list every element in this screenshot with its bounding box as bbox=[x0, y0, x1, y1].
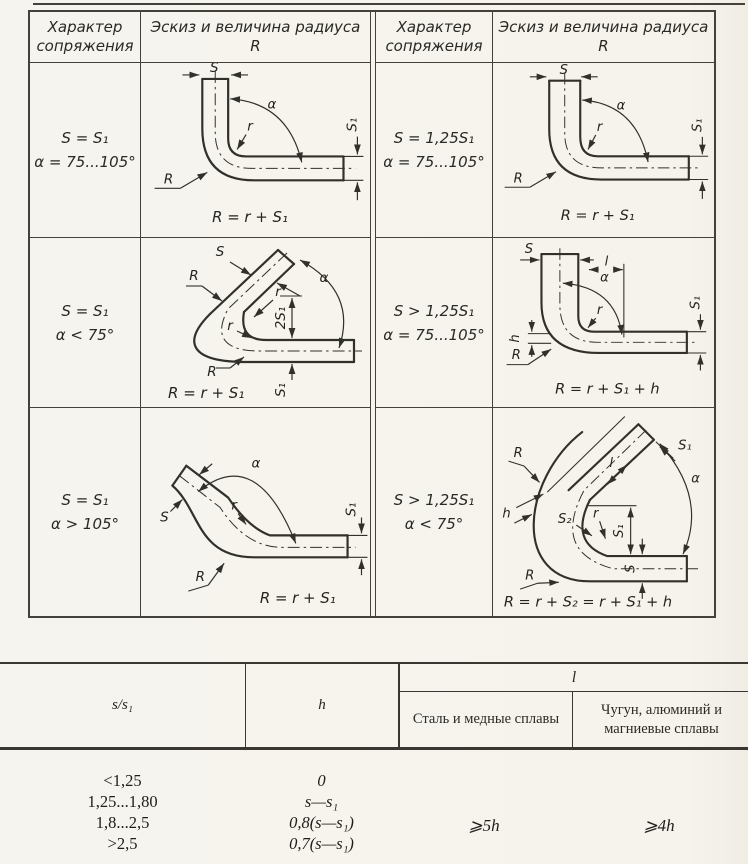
sketch-r3-right: S₁ R α l h S₂ r S₁ S R R = r + S₂ = r + … bbox=[492, 407, 714, 616]
label-l: l bbox=[609, 456, 613, 471]
ratio-value: <1,25 bbox=[103, 770, 141, 791]
label-s: S bbox=[215, 244, 224, 260]
h-value: 0,7(s—s₁) bbox=[289, 833, 354, 854]
condition-r1-right: S = 1,25S₁ α = 75...105° bbox=[376, 62, 492, 237]
h-value: 0,8(s—s₁) bbox=[289, 812, 354, 833]
formula: R = r + S₂ = r + S₁ + h bbox=[504, 595, 672, 611]
label-s1: S₁ bbox=[688, 296, 703, 310]
col-header-l: l bbox=[400, 664, 748, 692]
condition-line: α > 105° bbox=[51, 515, 119, 533]
condition-r3-right: S > 1,25S₁ α < 75° bbox=[376, 407, 492, 616]
label-s1: S₁ bbox=[690, 118, 705, 132]
condition-r1-left: S = S₁ α = 75...105° bbox=[30, 62, 140, 237]
label-h: h bbox=[502, 506, 510, 521]
label-r: r bbox=[247, 120, 254, 135]
condition-line: α < 75° bbox=[405, 515, 464, 533]
page-top-rule bbox=[33, 3, 745, 5]
label-2s1: 2S₁ bbox=[273, 307, 289, 330]
condition-line: S = 1,25S₁ bbox=[394, 129, 475, 147]
sketch-r3-left: α S r R S₁ R = r + S₁ bbox=[140, 407, 370, 616]
header-sketch-left: Эскиз и величина радиуса R bbox=[140, 12, 370, 62]
header-character-right: Характер сопряжения bbox=[376, 12, 492, 62]
label-s1: S₁ bbox=[344, 503, 359, 517]
condition-r2-left: S = S₁ α < 75° bbox=[30, 237, 140, 407]
bend-sketch-right-angle: S α r R S₁ R = r + S₁ bbox=[142, 63, 370, 234]
label-s1: S₁ bbox=[345, 118, 360, 132]
label-s2: S₂ bbox=[558, 512, 572, 527]
l-steel-value: ⩾5h bbox=[398, 770, 570, 858]
label-R: R bbox=[525, 568, 534, 583]
condition-line: α = 75...105° bbox=[383, 326, 485, 344]
condition-line: α < 75° bbox=[56, 326, 115, 344]
l-cast-value: ⩾4h bbox=[570, 770, 748, 858]
label-s: S bbox=[209, 63, 218, 76]
col-header-ratio: s/s₁ bbox=[0, 664, 245, 747]
header-character-left: Характер сопряжения bbox=[30, 12, 140, 62]
condition-line: S > 1,25S₁ bbox=[394, 302, 475, 320]
label-r: r bbox=[597, 303, 604, 318]
condition-line: S = S₁ bbox=[61, 129, 108, 147]
formula: R = r + S₁ bbox=[212, 208, 288, 226]
label-R: R bbox=[189, 268, 198, 284]
h-value: 0 bbox=[317, 770, 325, 791]
label-r: r bbox=[597, 120, 604, 135]
sketch-r2-right: S l α r h S₁ R R = r + S₁ + h bbox=[492, 237, 714, 407]
sketch-r1-right: S α r R S₁ R = r + S₁ bbox=[492, 62, 714, 237]
label-alpha: α bbox=[267, 98, 276, 113]
label-alpha: α bbox=[617, 99, 626, 114]
label-r: r bbox=[275, 284, 282, 300]
label-s1: S₁ bbox=[612, 524, 627, 538]
col-header-steel: Сталь и медные сплавы bbox=[400, 692, 572, 747]
bend-sketch-acute: S R α r r 2S₁ S₁ R R = r + S₁ bbox=[142, 238, 370, 404]
bend-sketch-obtuse: α S r R S₁ R = r + S₁ bbox=[142, 408, 370, 616]
ratio-value: 1,25...1,80 bbox=[87, 791, 157, 812]
label-l: l bbox=[605, 255, 609, 270]
label-alpha: α bbox=[600, 270, 609, 285]
col-group-l: l Сталь и медные сплавы Чугун, алюминий … bbox=[398, 664, 748, 747]
formula: R = r + S₁ bbox=[259, 589, 335, 607]
label-alpha: α bbox=[251, 457, 260, 472]
condition-line: α = 75...105° bbox=[383, 153, 485, 171]
sketch-r1-left: S α r R S₁ R = r + S₁ bbox=[140, 62, 370, 237]
header-sketch-right: Эскиз и величина радиуса R bbox=[492, 12, 714, 62]
col-header-h: h bbox=[245, 664, 398, 747]
condition-line: S = S₁ bbox=[61, 491, 108, 509]
condition-r3-left: S = S₁ α > 105° bbox=[30, 407, 140, 616]
h-values: 0 s—s₁ 0,8(s—s₁) 0,7(s—s₁) bbox=[245, 770, 398, 858]
condition-line: S > 1,25S₁ bbox=[394, 491, 475, 509]
condition-line: α = 75...105° bbox=[34, 153, 136, 171]
label-R: R bbox=[512, 348, 521, 363]
bend-sketch-right-angle: S α r R S₁ R = r + S₁ bbox=[493, 63, 714, 234]
formula: R = r + S₁ + h bbox=[555, 382, 659, 398]
sketch-r2-left: S R α r r 2S₁ S₁ R R = r + S₁ bbox=[140, 237, 370, 407]
label-s1: S₁ bbox=[273, 383, 289, 397]
label-s: S bbox=[525, 242, 533, 257]
ratio-value: 1,8...2,5 bbox=[96, 812, 150, 833]
label-R: R bbox=[207, 364, 216, 380]
col-header-cast: Чугун, алюминий и магниевые сплавы bbox=[572, 692, 748, 747]
formula: R = r + S₁ bbox=[561, 208, 635, 224]
label-R: R bbox=[163, 172, 172, 187]
label-R: R bbox=[514, 171, 523, 186]
formula: R = r + S₁ bbox=[168, 384, 244, 402]
condition-line: S = S₁ bbox=[61, 302, 108, 320]
bend-sketch-step: S l α r h S₁ R R = r + S₁ + h bbox=[493, 238, 714, 404]
label-s1: S₁ bbox=[678, 438, 692, 453]
label-s: S bbox=[560, 63, 568, 78]
label-h: h bbox=[508, 334, 523, 342]
label-s: S bbox=[624, 565, 639, 573]
h-value: s—s₁ bbox=[305, 791, 338, 812]
label-alpha: α bbox=[319, 270, 328, 286]
condition-r2-right: S > 1,25S₁ α = 75...105° bbox=[376, 237, 492, 407]
label-R: R bbox=[195, 570, 204, 585]
parameters-table: s/s₁ h l Сталь и медные сплавы Чугун, ал… bbox=[0, 662, 748, 750]
fillet-radius-diagram-table: Характер сопряжения Эскиз и величина рад… bbox=[28, 10, 716, 618]
ratio-value: >2,5 bbox=[108, 833, 138, 854]
label-alpha: α bbox=[691, 471, 700, 486]
label-r: r bbox=[227, 318, 234, 334]
label-r: r bbox=[593, 506, 600, 521]
bend-sketch-acute-step: S₁ R α l h S₂ r S₁ S R R = r + S₂ = r + … bbox=[493, 408, 714, 616]
label-s: S bbox=[160, 510, 169, 525]
parameters-values: <1,25 1,25...1,80 1,8...2,5 >2,5 0 s—s₁ … bbox=[0, 770, 748, 858]
ratio-values: <1,25 1,25...1,80 1,8...2,5 >2,5 bbox=[0, 770, 245, 858]
label-R: R bbox=[514, 446, 523, 461]
